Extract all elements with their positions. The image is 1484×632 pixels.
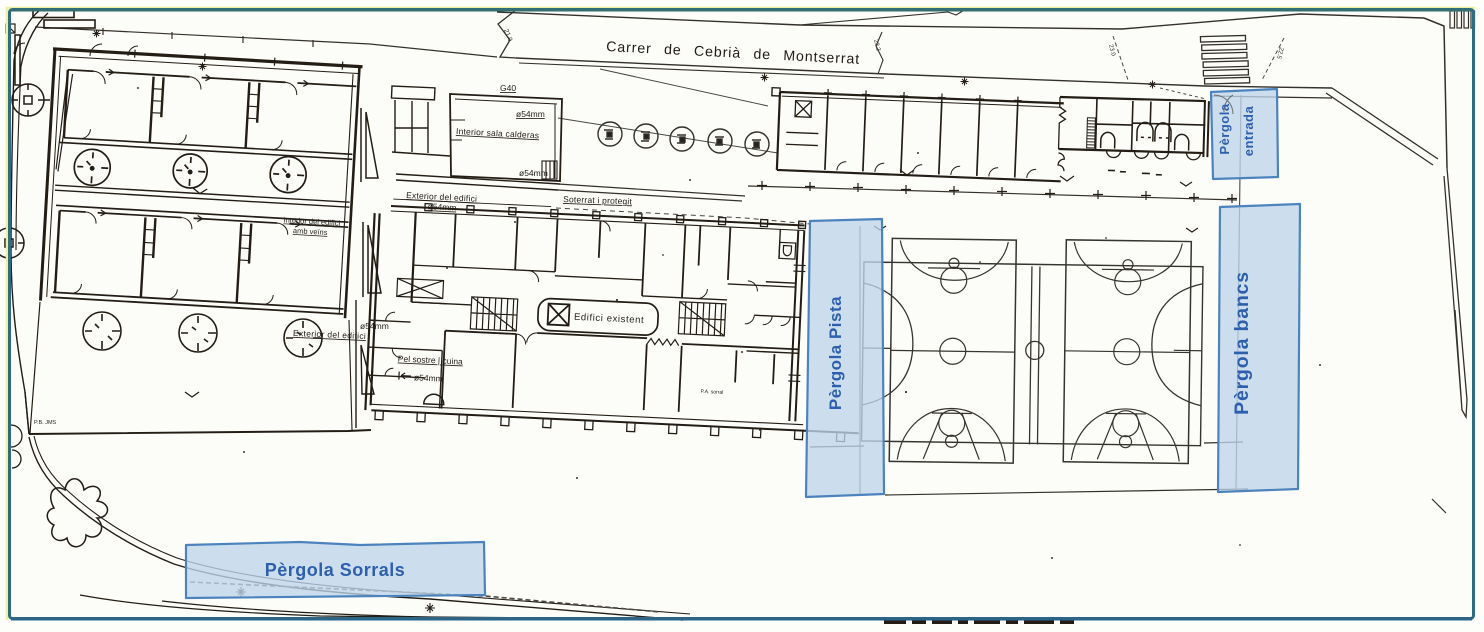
svg-text:ø54mm: ø54mm (519, 168, 548, 178)
svg-text:P.A. sorral: P.A. sorral (700, 389, 723, 396)
svg-text:Pèrgola Sorrals: Pèrgola Sorrals (265, 560, 406, 580)
svg-text:ø54mm: ø54mm (516, 109, 545, 119)
svg-text:P.B. JMS: P.B. JMS (34, 420, 57, 426)
svg-text:Pèrgola bancs: Pèrgola bancs (1231, 271, 1253, 415)
svg-text:entrada: entrada (1241, 106, 1256, 157)
svg-text:Pèrgola Pista: Pèrgola Pista (826, 296, 845, 410)
svg-text:ø54mm: ø54mm (414, 372, 443, 383)
svg-text:Pèrgola: Pèrgola (1217, 103, 1232, 154)
svg-text:G40: G40 (500, 83, 516, 93)
